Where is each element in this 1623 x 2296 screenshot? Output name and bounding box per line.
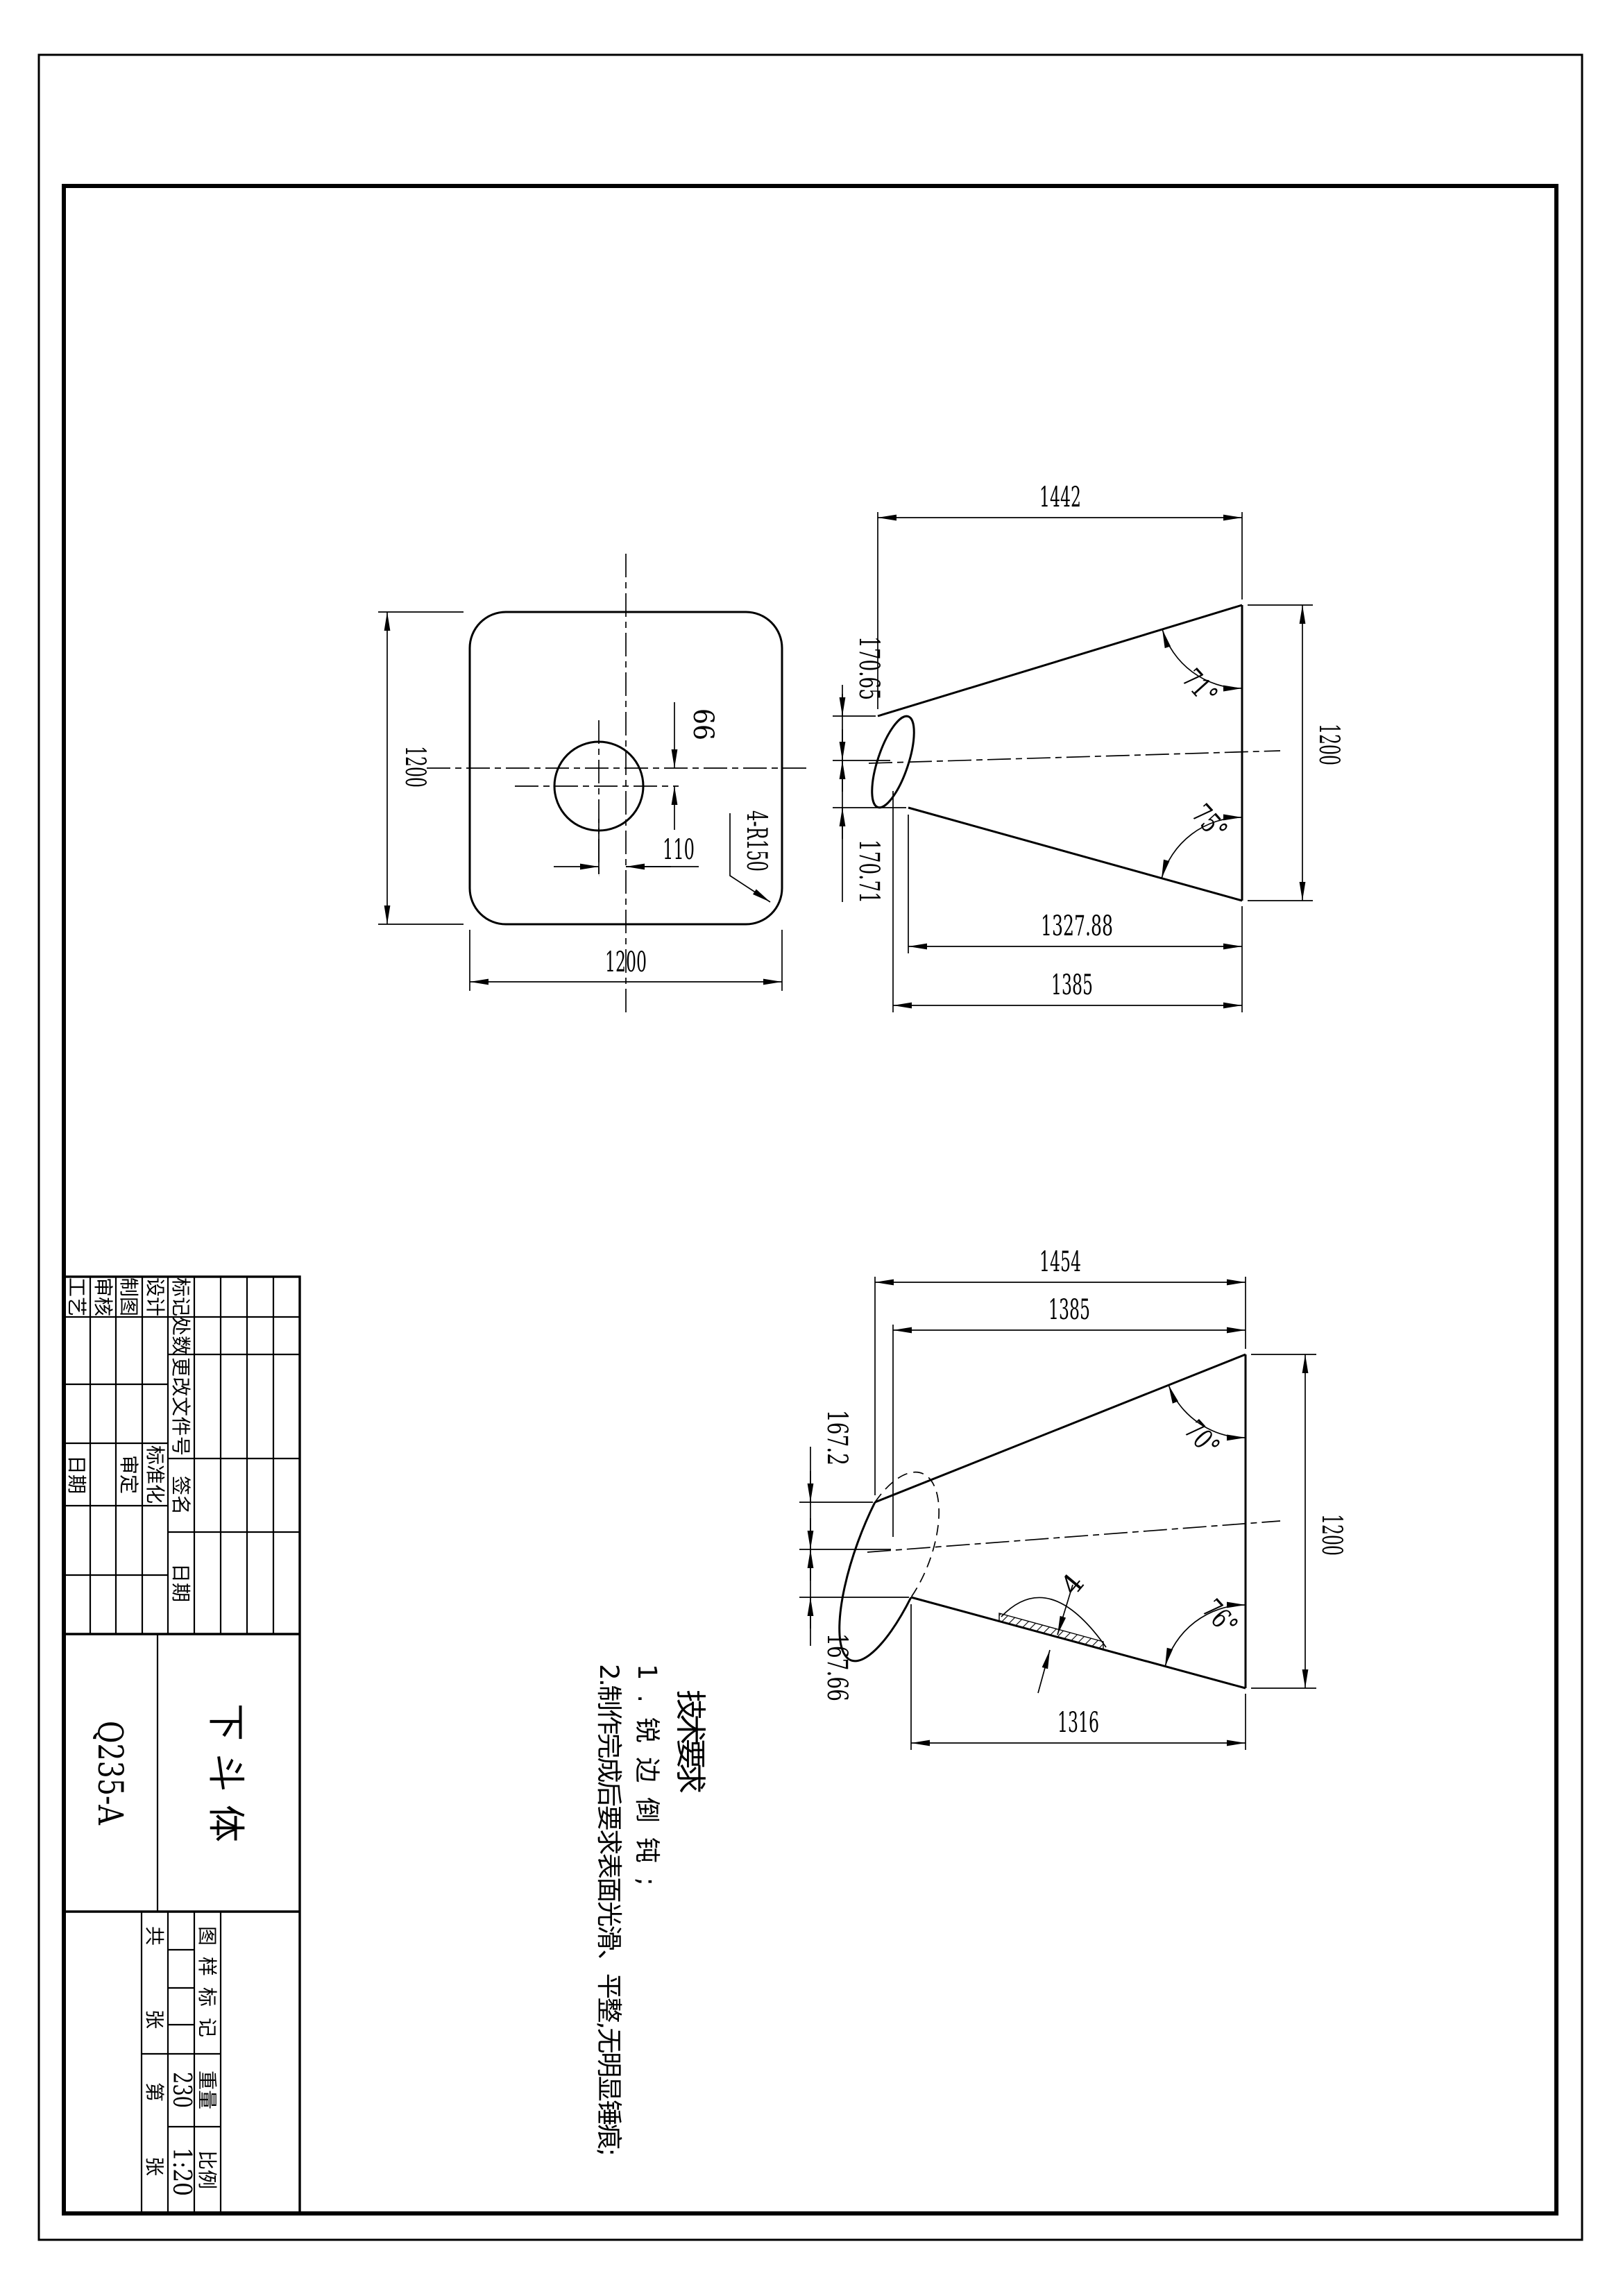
tech-req-item-2: 2.制作完成后要求表面光滑、平整,无明显锤痕; bbox=[594, 1664, 624, 2157]
tb-scale-value: 1:20 bbox=[167, 2148, 196, 2196]
tb-part-name: 下斗体 bbox=[204, 1703, 248, 1842]
dim-cone1-inner: 1327.88 bbox=[1041, 910, 1113, 942]
tb-draft: 制图 bbox=[117, 1277, 140, 1316]
dim-flange-width: 1200 bbox=[605, 946, 647, 978]
tb-weight-label: 重量 bbox=[196, 2070, 219, 2109]
dim-cone1-half-bottom: 170.71 bbox=[853, 840, 885, 903]
dim-cone2-inner: 1316 bbox=[1057, 1707, 1099, 1739]
dim-hole-offset-y: 66 bbox=[687, 708, 719, 740]
dim-cone1-height: 1200 bbox=[1313, 724, 1345, 765]
drawing-canvas: 1200 1200 66 110 4-R150 1442 bbox=[0, 0, 1623, 2296]
dim-cone2-mid: 1385 bbox=[1048, 1294, 1090, 1326]
dim-cone1-angle-top: 71° bbox=[1175, 663, 1223, 711]
tech-req-item-1: 1.锐边倒钝; bbox=[632, 1664, 662, 1886]
dim-cone2-height: 1200 bbox=[1316, 1514, 1348, 1556]
dim-flange-height: 1200 bbox=[399, 746, 431, 788]
dim-cone2-overall: 1454 bbox=[1039, 1246, 1081, 1278]
dim-cone1-half-top: 170.65 bbox=[853, 636, 885, 700]
view-flange: 1200 1200 66 110 4-R150 bbox=[378, 554, 810, 1013]
tb-rev-mark: 标记 bbox=[169, 1277, 192, 1316]
tech-requirements: 技术要求 1.锐边倒钝; 2.制作完成后要求表面光滑、平整,无明显锤痕; bbox=[594, 1664, 708, 2157]
dim-cone1-mid: 1385 bbox=[1051, 969, 1093, 1001]
dim-cone2-thickness: 4 bbox=[1055, 1567, 1091, 1601]
tb-material: Q235-A bbox=[90, 1721, 130, 1826]
section-hatch bbox=[999, 1613, 1103, 1650]
spec-cells: 图样标记 重量 比例 230 1:20 共 张 第 张 bbox=[142, 1912, 221, 2213]
tb-rev-sign: 签名 bbox=[169, 1476, 192, 1515]
tech-req-title: 技术要求 bbox=[672, 1690, 708, 1794]
tb-design: 设计 bbox=[144, 1277, 167, 1316]
dim-hole-offset-x: 110 bbox=[663, 834, 695, 866]
dim-cone2-angle-bottom: 76° bbox=[1196, 1594, 1243, 1642]
tb-stamp-label: 图样标记 bbox=[196, 1926, 219, 2037]
dim-cone2-half-top: 167.2 bbox=[821, 1410, 853, 1465]
tb-sheet-total-unit: 张 bbox=[143, 2009, 166, 2029]
title-block: 标记 处数 更改文件号 签名 日期 设计 制图 审核 工艺 标准化 审定 日期 … bbox=[64, 1277, 300, 2213]
tb-sheet-no-label: 第 bbox=[143, 2082, 166, 2102]
tb-approve: 审定 bbox=[117, 1455, 140, 1494]
view-cone-top: 1442 1200 170.65 170.71 1327.88 1385 71°… bbox=[833, 482, 1345, 1012]
tb-process: 工艺 bbox=[65, 1277, 88, 1316]
drawing-sheet: 1200 1200 66 110 4-R150 1442 bbox=[0, 0, 1623, 2296]
tb-rev-docno: 更改文件号 bbox=[169, 1357, 192, 1456]
tb-sheet-total-label: 共 bbox=[143, 1926, 166, 1946]
tb-rev-count: 处数 bbox=[169, 1316, 192, 1355]
tb-process-date: 日期 bbox=[65, 1455, 88, 1494]
dim-corner-radius: 4-R150 bbox=[740, 810, 772, 871]
part-id-cells: 下斗体 Q235-A bbox=[90, 1634, 248, 1912]
tb-weight-value: 230 bbox=[167, 2072, 196, 2108]
tb-standardization: 标准化 bbox=[144, 1445, 167, 1504]
tb-check: 审核 bbox=[92, 1277, 114, 1316]
tb-scale-label: 比例 bbox=[196, 2150, 219, 2189]
tb-sheet-no-unit: 张 bbox=[143, 2157, 166, 2176]
view-cone-bottom: 1454 1385 1200 167.2 167.66 1316 70° 76° bbox=[799, 1246, 1348, 1750]
dim-cone1-angle-bottom: 75° bbox=[1185, 799, 1233, 847]
dim-cone2-angle-top: 70° bbox=[1178, 1415, 1225, 1463]
dim-cone1-overall: 1442 bbox=[1039, 482, 1081, 513]
tb-rev-date: 日期 bbox=[169, 1563, 192, 1602]
revision-table: 标记 处数 更改文件号 签名 日期 设计 制图 审核 工艺 标准化 审定 日期 bbox=[64, 1277, 300, 1634]
dim-cone2-half-bottom: 167.66 bbox=[821, 1633, 853, 1701]
